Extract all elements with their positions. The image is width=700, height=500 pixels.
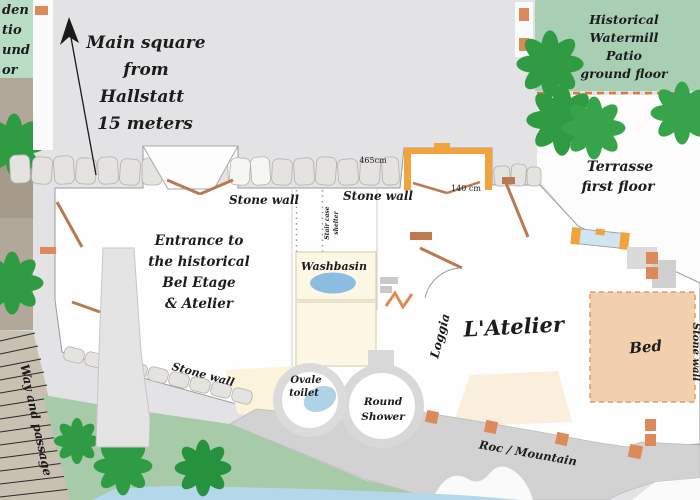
staircase-label: Stair case (324, 206, 331, 239)
tree-icon (516, 30, 583, 97)
svg-text:15 meters: 15 meters (97, 114, 193, 134)
floor-plan-canvas: den tio und or Way and passage Historica… (0, 0, 700, 500)
washbasin-icon (310, 273, 356, 294)
atelier-floor (452, 371, 572, 427)
window-marker (646, 252, 658, 264)
svg-text:Bel Etage: Bel Etage (161, 275, 236, 291)
svg-text:Hallstatt: Hallstatt (99, 87, 184, 107)
window-marker (35, 6, 48, 15)
garden-label-fragment: tio (2, 23, 22, 38)
stone-wall-label: Stone wall (343, 189, 413, 203)
terrasse-label: first floor (580, 179, 656, 195)
shower-label: Round (363, 396, 403, 408)
svg-text:Entrance to: Entrance to (154, 233, 244, 249)
toilet-label: toilet (289, 388, 319, 399)
svg-text:& Atelier: & Atelier (165, 296, 234, 312)
floor-plan: den tio und or Way and passage Historica… (0, 0, 700, 500)
window-marker (519, 8, 529, 21)
wall-stub (380, 286, 392, 293)
staircase-label: shelter (333, 210, 340, 234)
toilet: Ovale toilet (273, 363, 347, 437)
svg-text:the historical: the historical (148, 254, 249, 270)
stone-wall-label: Stone wall (229, 193, 299, 207)
svg-text:from: from (122, 60, 169, 80)
washbasin-label: Washbasin (301, 260, 367, 273)
tree-icon (563, 97, 626, 160)
garden-label-fragment: den (2, 3, 29, 18)
toilet-label: Ovale (290, 375, 321, 386)
terrasse-label: Terrasse (587, 159, 653, 175)
wall-stub (380, 277, 398, 284)
watermill-label: ground floor (580, 66, 669, 81)
bush-icon (54, 418, 100, 464)
washbasin-room: Washbasin (296, 252, 376, 366)
bed-label: Bed (628, 337, 664, 358)
window-marker (646, 267, 658, 279)
watermill-label: Patio (605, 48, 642, 63)
svg-text:Main square: Main square (85, 33, 205, 53)
shower-label: Shower (361, 411, 406, 423)
watermill-label: Watermill (590, 30, 659, 45)
wall-measure: 465cm (359, 156, 387, 165)
window-measure: 140 cm (451, 184, 481, 193)
watermill-label: Historical (588, 12, 659, 27)
bush-icon (175, 440, 232, 497)
stone-wall-right-label: Stone wall (690, 323, 700, 382)
garden-label-fragment: und (2, 43, 30, 58)
bed-area: Bed (590, 292, 695, 402)
window-room: 140 cm (404, 143, 492, 193)
garden-label-fragment: or (2, 63, 19, 78)
